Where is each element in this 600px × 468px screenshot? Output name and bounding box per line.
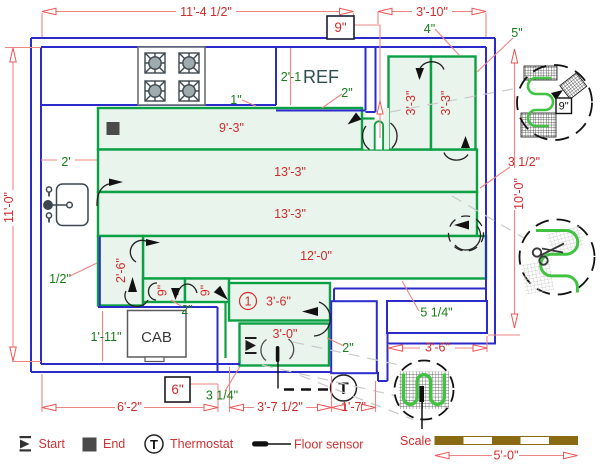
svg-text:5": 5" xyxy=(511,26,522,40)
svg-text:3'-3": 3'-3" xyxy=(404,91,418,116)
svg-text:9": 9" xyxy=(559,101,569,113)
svg-text:5'-0": 5'-0" xyxy=(494,449,519,463)
svg-text:3'-6": 3'-6" xyxy=(266,295,291,309)
svg-text:2": 2" xyxy=(181,303,192,317)
svg-text:2": 2" xyxy=(342,341,353,355)
svg-text:11'-4 1/2": 11'-4 1/2" xyxy=(180,5,232,19)
svg-text:3'-0": 3'-0" xyxy=(273,327,298,341)
svg-text:13'-3": 13'-3" xyxy=(274,207,306,221)
svg-text:1/2": 1/2" xyxy=(49,272,71,286)
svg-text:T: T xyxy=(150,437,158,452)
svg-text:2'-1: 2'-1 xyxy=(281,70,302,84)
svg-text:3 1/4": 3 1/4" xyxy=(206,389,238,403)
svg-text:3'-6": 3'-6" xyxy=(425,341,450,355)
svg-text:T: T xyxy=(338,379,349,398)
svg-text:Thermostat: Thermostat xyxy=(170,437,234,451)
svg-text:4": 4" xyxy=(424,22,435,36)
svg-text:9'-3": 9'-3" xyxy=(219,121,244,135)
svg-text:12'-0": 12'-0" xyxy=(300,249,332,263)
svg-text:1'-11": 1'-11" xyxy=(91,330,122,344)
svg-text:10'-0": 10'-0" xyxy=(512,178,526,210)
svg-text:2'-6": 2'-6" xyxy=(114,258,128,283)
svg-text:5 1/4": 5 1/4" xyxy=(420,306,452,320)
svg-text:6'-2": 6'-2" xyxy=(117,400,142,414)
svg-text:1: 1 xyxy=(245,295,252,309)
svg-text:2': 2' xyxy=(61,155,70,169)
svg-text:REF: REF xyxy=(303,67,339,87)
svg-text:11'-0": 11'-0" xyxy=(2,192,16,223)
svg-text:9": 9" xyxy=(199,285,213,296)
svg-text:9": 9" xyxy=(334,20,347,35)
svg-text:13'-3": 13'-3" xyxy=(274,165,306,179)
svg-text:End: End xyxy=(103,437,125,451)
svg-text:1": 1" xyxy=(230,93,241,107)
svg-text:3'-3": 3'-3" xyxy=(439,91,453,116)
svg-text:9": 9" xyxy=(156,285,170,296)
svg-text:Start: Start xyxy=(39,437,66,451)
svg-text:6": 6" xyxy=(171,382,184,397)
svg-text:2": 2" xyxy=(341,86,352,100)
svg-text:3'-7 1/2": 3'-7 1/2" xyxy=(257,400,303,414)
svg-text:Scale: Scale xyxy=(400,434,431,448)
svg-text:Floor sensor: Floor sensor xyxy=(294,438,363,452)
svg-text:1'-7": 1'-7" xyxy=(341,400,366,414)
svg-text:3'-10": 3'-10" xyxy=(416,5,448,19)
svg-text:CAB: CAB xyxy=(141,329,172,346)
svg-text:3 1/2": 3 1/2" xyxy=(508,155,540,169)
